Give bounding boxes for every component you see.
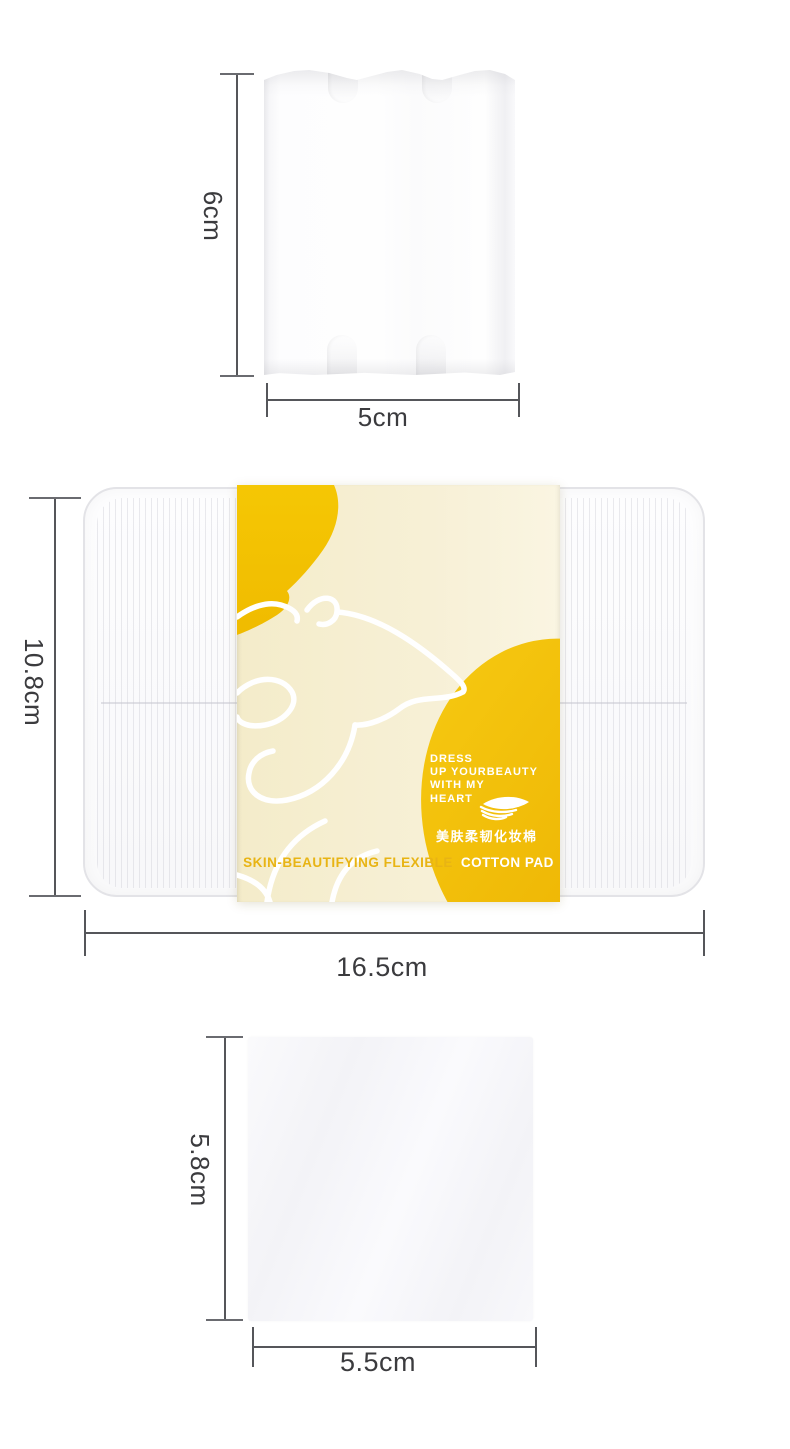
product-dimension-page: 6cm 5cm [0, 0, 790, 1449]
measure-cap [206, 1036, 243, 1038]
pad-tab [327, 335, 357, 375]
top-pad-width-line [266, 399, 520, 401]
top-pad-width-label: 5cm [323, 404, 443, 430]
top-pad-height-line [236, 73, 238, 377]
tagline-line: UP YOURBEAUTY [430, 766, 538, 779]
measure-cap [220, 375, 254, 377]
measure-cap [535, 1327, 537, 1367]
measure-cap [84, 910, 86, 956]
pad-tab [422, 70, 452, 103]
measure-cap [266, 383, 268, 417]
measure-cap [703, 910, 705, 956]
measure-cap [252, 1327, 254, 1367]
pad-tab [416, 335, 446, 375]
yellow-blob-shape [237, 485, 338, 635]
package-height-label: 10.8cm [21, 622, 47, 742]
bottom-pad-width-label: 5.5cm [318, 1349, 438, 1375]
cotton-pad-photo-top [264, 70, 515, 375]
tagline-line: DRESS [430, 753, 538, 766]
package-width-label: 16.5cm [322, 954, 442, 980]
measure-cap [518, 383, 520, 417]
tagline-line: WITH MY [430, 779, 538, 792]
package-width-line [84, 932, 705, 934]
product-name-en-left: SKIN-BEAUTIFYING FLEXIBLE [243, 855, 453, 870]
product-name-en-right: COTTON PAD [461, 855, 554, 870]
bottom-pad-height-line [224, 1036, 226, 1321]
pad-tab [328, 70, 358, 103]
cotton-pad-stack-icon [476, 793, 532, 821]
cotton-pad-photo-bottom [248, 1037, 533, 1321]
measure-cap [220, 73, 254, 75]
package-height-line [54, 497, 56, 897]
measure-cap [29, 895, 81, 897]
top-pad-height-label: 6cm [200, 156, 226, 276]
bottom-pad-height-label: 5.8cm [187, 1110, 213, 1230]
measure-cap [29, 497, 81, 499]
sleeve-product-name-cn: 美肤柔韧化妆棉 [436, 826, 538, 845]
sleeve-product-name-en: SKIN-BEAUTIFYING FLEXIBLECOTTON PAD [237, 855, 560, 870]
measure-cap [206, 1319, 243, 1321]
